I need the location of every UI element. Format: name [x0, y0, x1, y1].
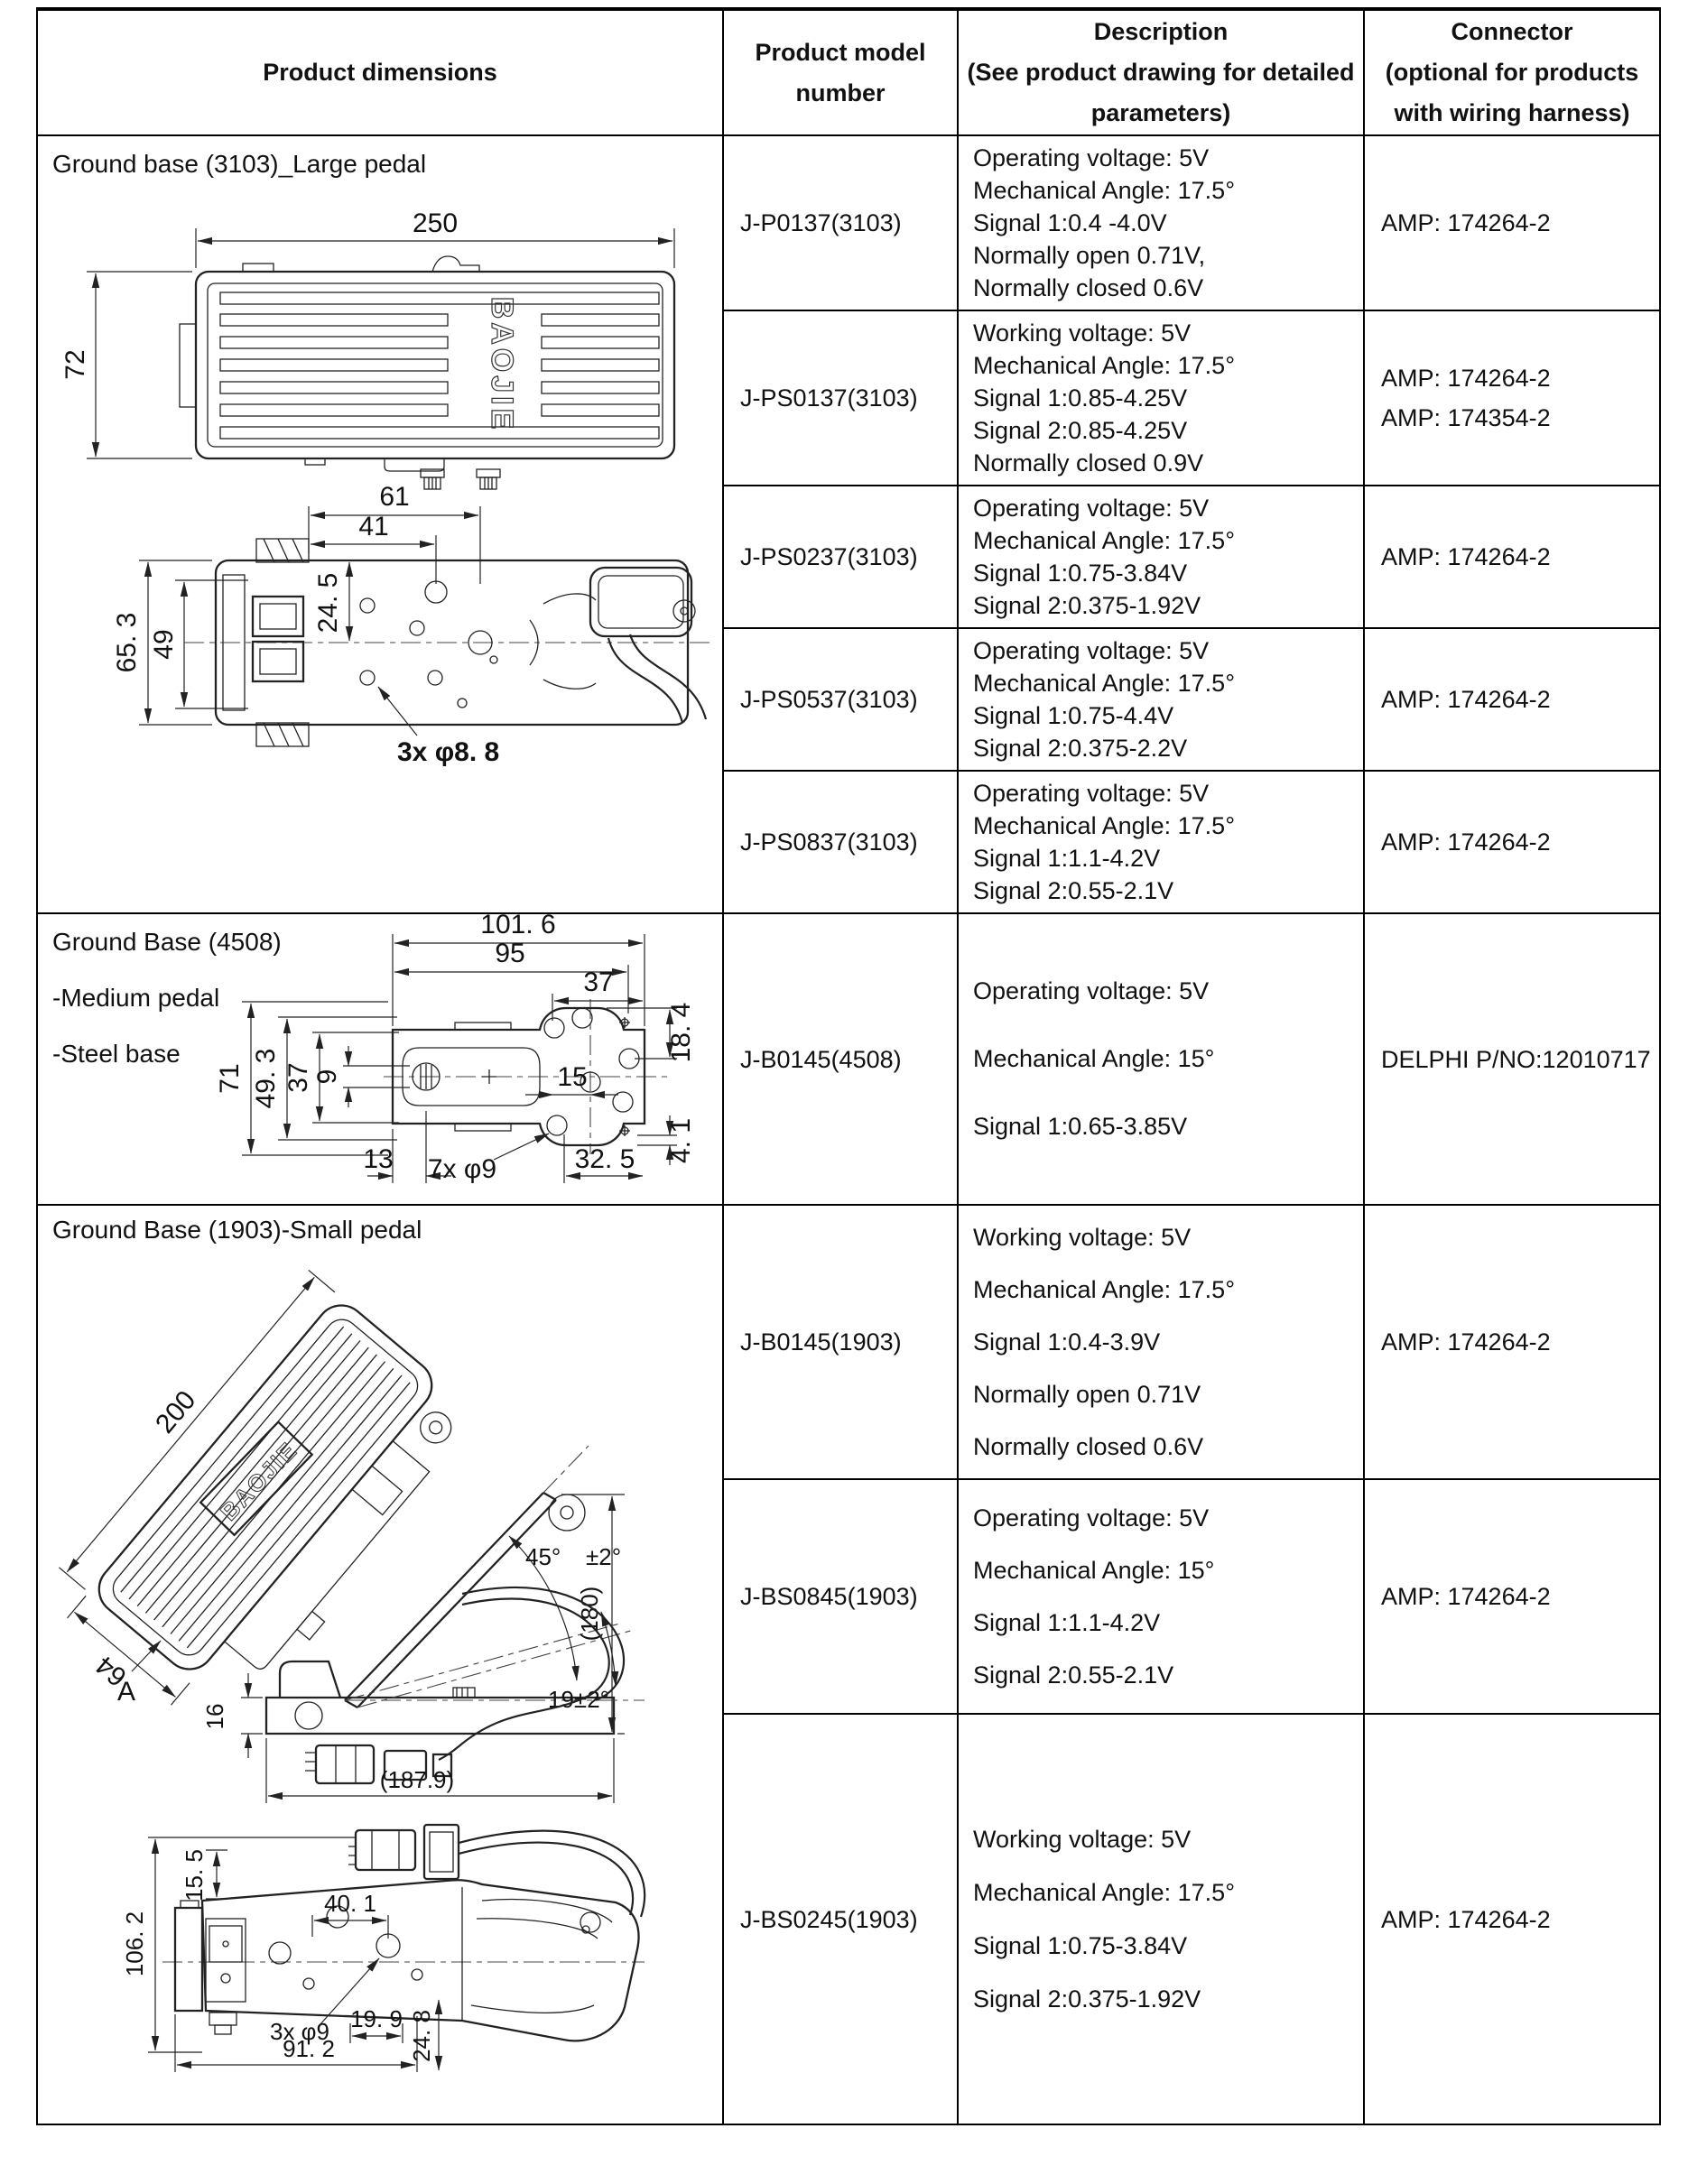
section-title-3103: Ground base (3103)_Large pedal	[52, 150, 426, 178]
header-line: Connector	[1365, 12, 1659, 52]
description-line: Working voltage: 5V	[973, 1211, 1359, 1263]
mounting-holes	[269, 1906, 422, 1989]
section-subtitle-medium-pedal: -Medium pedal	[52, 984, 219, 1012]
description-cell: Operating voltage: 5V Mechanical Angle: …	[958, 913, 1364, 1205]
description-line: Working voltage: 5V	[973, 317, 1359, 349]
dim-61: 61	[379, 482, 409, 512]
description-line: Signal 1:1.1-4.2V	[973, 1596, 1359, 1649]
description-line: Operating voltage: 5V	[973, 1492, 1359, 1544]
model-cell: J-BS0845(1903)	[723, 1479, 958, 1714]
description-line: Signal 1:0.65-3.85V	[973, 1093, 1359, 1161]
connector-cell: AMP: 174264-2 AMP: 174354-2	[1364, 310, 1660, 486]
dim-72: 72	[60, 349, 90, 379]
model-cell: J-B0145(1903)	[723, 1205, 958, 1479]
dim-13: 13	[363, 1144, 393, 1174]
model-number: J-PS0237(3103)	[724, 541, 957, 573]
connector-cell: AMP: 174264-2	[1364, 1479, 1660, 1714]
dim-200: 200	[150, 1385, 201, 1439]
description-line: Normally open 0.71V,	[973, 239, 1359, 272]
connector-code: AMP: 174264-2	[1365, 680, 1659, 719]
connector-code: AMP: 174354-2	[1365, 398, 1659, 438]
connector-cell: AMP: 174264-2	[1364, 771, 1660, 913]
table-row: Ground Base (1903)-Small pedal BAOJIE	[37, 1205, 1660, 1479]
description-line: Normally open 0.71V	[973, 1368, 1359, 1421]
description-line: Mechanical Angle: 17.5°	[973, 174, 1359, 207]
description-line: Signal 2:0.55-2.1V	[973, 875, 1359, 907]
description-line: Signal 1:0.75-4.4V	[973, 699, 1359, 732]
description-line: Signal 1:0.75-3.84V	[973, 557, 1359, 589]
connector-cell: DELPHI P/NO:12010717	[1364, 913, 1660, 1205]
description-line: Operating voltage: 5V	[973, 777, 1359, 810]
dim-24-5: 24. 5	[313, 573, 343, 634]
brand-logo-text: BAOJIE	[485, 297, 519, 433]
description-line: Mechanical Angle: 17.5°	[973, 349, 1359, 382]
dimensions-cell-3103: Ground base (3103)_Large pedal 250 72	[37, 135, 723, 913]
col-header-connector: Connector (optional for products with wi…	[1364, 9, 1660, 135]
col-header-model-number: Product model number	[723, 9, 958, 135]
description-line: Mechanical Angle: 17.5°	[973, 810, 1359, 842]
header-line: Description	[959, 12, 1363, 52]
dim-49: 49	[149, 629, 179, 659]
description-line: Signal 1:0.4 -4.0V	[973, 207, 1359, 239]
connector-code: AMP: 174264-2	[1365, 537, 1659, 577]
connector-code: AMP: 174264-2	[1365, 822, 1659, 862]
description-line: Normally closed 0.6V	[973, 272, 1359, 304]
dimensions-cell-4508: Ground Base (4508) -Medium pedal -Steel …	[37, 913, 723, 1205]
description-line: Mechanical Angle: 17.5°	[973, 1263, 1359, 1316]
model-number: J-PS0537(3103)	[724, 683, 957, 716]
description-cell: Operating voltage: 5V Mechanical Angle: …	[958, 1479, 1364, 1714]
dim-holes-3103: 3x φ8. 8	[397, 737, 499, 767]
dim-37-left: 37	[283, 1062, 313, 1092]
description-line: Mechanical Angle: 17.5°	[973, 524, 1359, 557]
dim-65-3: 65. 3	[112, 613, 142, 673]
connector-cell: AMP: 174264-2	[1364, 1205, 1660, 1479]
description-line: Operating voltage: 5V	[973, 492, 1359, 524]
description-line: Signal 1:0.75-3.84V	[973, 1920, 1359, 1973]
model-number: J-BS0845(1903)	[724, 1580, 957, 1613]
mounting-holes	[360, 581, 497, 708]
description-line: Signal 1:0.85-4.25V	[973, 382, 1359, 414]
dim-187-9: (187.9)	[380, 1766, 454, 1793]
model-cell: J-PS0137(3103)	[723, 310, 958, 486]
header-line: with wiring harness)	[1365, 93, 1659, 134]
table-header-row: Product dimensions Product model number …	[37, 9, 1660, 135]
model-number: J-BS0245(1903)	[724, 1903, 957, 1936]
view-label-A: A	[117, 1677, 135, 1707]
connector-code: DELPHI P/NO:12010717	[1365, 1040, 1659, 1079]
product-spec-table: Product dimensions Product model number …	[36, 7, 1661, 2125]
model-number: J-B0145(1903)	[724, 1326, 957, 1358]
connector-code: AMP: 174264-2	[1365, 1577, 1659, 1616]
section-title-1903: Ground Base (1903)-Small pedal	[52, 1216, 422, 1244]
dim-40-1: 40. 1	[324, 1890, 376, 1917]
dim-18-4: 18. 4	[666, 1003, 696, 1063]
description-line: Mechanical Angle: 15°	[973, 1544, 1359, 1596]
description-line: Signal 2:0.375-2.2V	[973, 732, 1359, 764]
model-cell: J-BS0245(1903)	[723, 1714, 958, 2124]
col-header-product-dimensions: Product dimensions	[37, 9, 723, 135]
header-line: (See product drawing for detailed	[959, 52, 1363, 93]
description-line: Operating voltage: 5V	[973, 142, 1359, 174]
description-line: Mechanical Angle: 15°	[973, 1025, 1359, 1093]
dim-49-3: 49. 3	[251, 1049, 281, 1109]
connector-cell: AMP: 174264-2	[1364, 1714, 1660, 2124]
dimensions-cell-1903: Ground Base (1903)-Small pedal BAOJIE	[37, 1205, 723, 2124]
description-cell: Operating voltage: 5V Mechanical Angle: …	[958, 135, 1364, 310]
model-cell: J-PS0537(3103)	[723, 628, 958, 771]
connector-cell: AMP: 174264-2	[1364, 135, 1660, 310]
drawing-1903: Ground Base (1903)-Small pedal BAOJIE	[38, 1206, 720, 2118]
description-line: Signal 2:0.85-4.25V	[973, 414, 1359, 447]
dim-106-2: 106. 2	[121, 1911, 148, 1976]
description-cell: Working voltage: 5V Mechanical Angle: 17…	[958, 1205, 1364, 1479]
dim-37-top: 37	[583, 967, 613, 997]
description-cell: Operating voltage: 5V Mechanical Angle: …	[958, 628, 1364, 771]
description-line: Normally closed 0.6V	[973, 1421, 1359, 1473]
connector-cell: AMP: 174264-2	[1364, 628, 1660, 771]
connector-code: AMP: 174264-2	[1365, 1322, 1659, 1362]
model-cell: J-PS0837(3103)	[723, 771, 958, 913]
col-header-description: Description (See product drawing for det…	[958, 9, 1364, 135]
pedal-1903-bottom-view: 106. 2 15. 5 40. 1 3x φ9 19. 9 91. 2	[121, 1825, 645, 2072]
connector-cell: AMP: 174264-2	[1364, 486, 1660, 628]
header-line: parameters)	[959, 93, 1363, 134]
description-line: Working voltage: 5V	[973, 1813, 1359, 1866]
pedal-ribs	[220, 292, 659, 439]
dim-91-2: 91. 2	[283, 2035, 335, 2062]
pedal-3103-top-view: 250 72 BAOJIE	[60, 208, 674, 489]
model-cell: J-B0145(4508)	[723, 913, 958, 1205]
description-line: Signal 2:0.55-2.1V	[973, 1649, 1359, 1701]
header-line: Product model	[724, 32, 957, 73]
description-line: Signal 2:0.375-1.92V	[973, 589, 1359, 622]
model-number: J-PS0137(3103)	[724, 382, 957, 414]
description-cell: Working voltage: 5V Mechanical Angle: 17…	[958, 310, 1364, 486]
model-number: J-B0145(4508)	[724, 1043, 957, 1076]
section-title-4508: Ground Base (4508)	[52, 928, 282, 956]
dim-angle-tolerance: ±2°	[586, 1543, 621, 1570]
description-line: Signal 1:0.4-3.9V	[973, 1316, 1359, 1368]
pedal-3103-bottom-view: 61 41 65. 3 49 24. 5	[112, 482, 710, 767]
table-row: Ground Base (4508) -Medium pedal -Steel …	[37, 913, 1660, 1205]
connector-code: AMP: 174264-2	[1365, 358, 1659, 398]
model-cell: J-PS0237(3103)	[723, 486, 958, 628]
description-cell: Operating voltage: 5V Mechanical Angle: …	[958, 486, 1364, 628]
dim-16: 16	[201, 1704, 228, 1730]
dim-71: 71	[215, 1063, 245, 1093]
description-line: Operating voltage: 5V	[973, 958, 1359, 1025]
description-line: Operating voltage: 5V	[973, 634, 1359, 667]
description-line: Signal 1:1.1-4.2V	[973, 842, 1359, 875]
model-cell: J-P0137(3103)	[723, 135, 958, 310]
description-line: Mechanical Angle: 17.5°	[973, 667, 1359, 699]
dim-95: 95	[495, 939, 524, 968]
pedal-1903-iso-view: BAOJIE 200 64	[38, 1254, 491, 1766]
description-line: Mechanical Angle: 17.5°	[973, 1866, 1359, 1920]
drawing-3103: Ground base (3103)_Large pedal 250 72	[38, 136, 720, 867]
dim-angle-45: 45°	[525, 1543, 561, 1570]
model-number: J-P0137(3103)	[724, 207, 957, 239]
dim-9: 9	[312, 1069, 342, 1085]
dim-15-5: 15. 5	[181, 1849, 208, 1902]
description-line: Signal 2:0.375-1.92V	[973, 1973, 1359, 2026]
dim-250: 250	[413, 208, 458, 238]
description-line: Normally closed 0.9V	[973, 447, 1359, 479]
dim-holes-4508: 7x φ9	[428, 1154, 496, 1184]
dim-32-5: 32. 5	[575, 1144, 635, 1174]
base-4508-plate-view: 101. 6 95 37 18. 4 71 49. 3	[215, 914, 696, 1184]
dim-4-1: 4. 1	[666, 1118, 696, 1163]
description-cell: Operating voltage: 5V Mechanical Angle: …	[958, 771, 1364, 913]
header-line: Product dimensions	[38, 52, 722, 93]
dim-19-9: 19. 9	[350, 2005, 403, 2032]
header-line: (optional for products	[1365, 52, 1659, 93]
dim-101-6: 101. 6	[480, 914, 555, 939]
description-cell: Working voltage: 5V Mechanical Angle: 17…	[958, 1714, 1364, 2124]
table-row: Ground base (3103)_Large pedal 250 72	[37, 135, 1660, 310]
connector-code: AMP: 174264-2	[1365, 203, 1659, 243]
dim-41: 41	[358, 512, 388, 541]
product-spec-sheet: Product dimensions Product model number …	[0, 0, 1688, 2184]
section-subtitle-steel-base: -Steel base	[52, 1040, 181, 1068]
model-number: J-PS0837(3103)	[724, 826, 957, 858]
drawing-4508: Ground Base (4508) -Medium pedal -Steel …	[38, 914, 720, 1202]
connector-code: AMP: 174264-2	[1365, 1900, 1659, 1939]
dim-24-8: 24. 8	[408, 2010, 435, 2062]
dim-15: 15	[557, 1062, 587, 1092]
header-line: number	[724, 73, 957, 114]
